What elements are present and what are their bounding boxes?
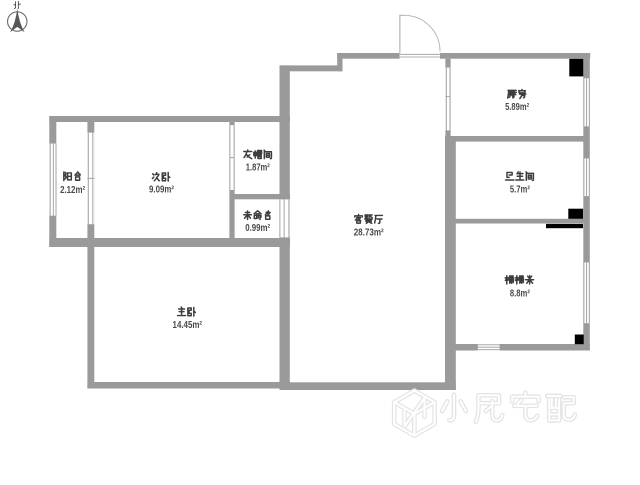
svg-text:0.99m²: 0.99m² — [245, 223, 271, 234]
svg-text:1.87m²: 1.87m² — [246, 162, 271, 173]
svg-text:28.73m²: 28.73m² — [354, 227, 385, 238]
svg-text:5.89m²: 5.89m² — [505, 102, 530, 113]
svg-text:14.45m²: 14.45m² — [173, 320, 203, 331]
svg-text:8.8m²: 8.8m² — [510, 289, 531, 300]
svg-text:9.09m²: 9.09m² — [149, 185, 175, 196]
svg-text:5.7m²: 5.7m² — [510, 185, 531, 196]
svg-text:2.12m²: 2.12m² — [60, 185, 86, 196]
